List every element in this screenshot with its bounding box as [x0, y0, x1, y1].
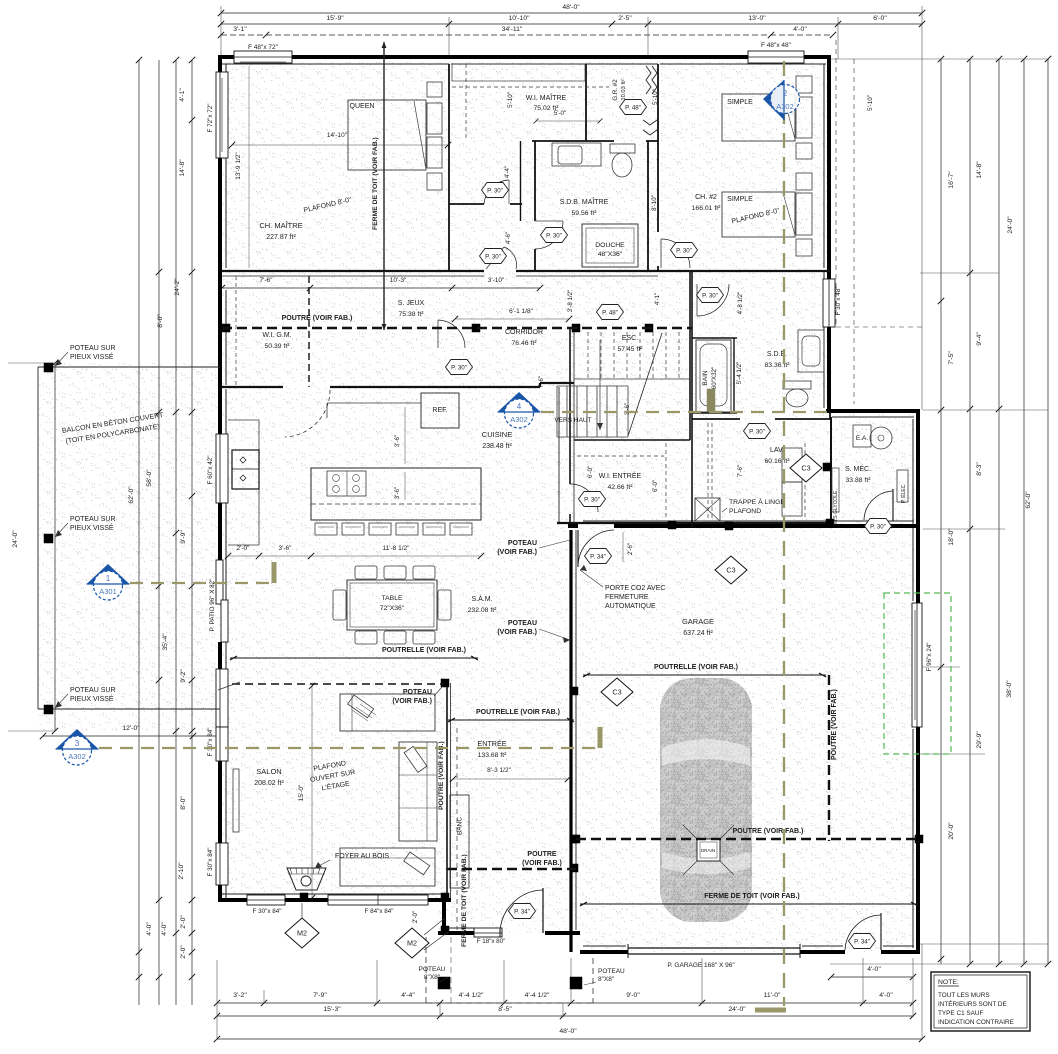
svg-text:REF.: REF.	[432, 407, 447, 414]
svg-text:(VOIR FAB.): (VOIR FAB.)	[497, 629, 537, 636]
svg-text:POTEAU: POTEAU	[508, 540, 537, 547]
svg-text:M2: M2	[297, 929, 307, 938]
svg-text:29'-9": 29'-9"	[976, 731, 983, 749]
svg-text:2'-0": 2'-0"	[237, 545, 251, 552]
svg-text:9'-4": 9'-4"	[976, 332, 983, 346]
svg-text:4'-0": 4'-0"	[146, 922, 153, 936]
svg-text:14'-10": 14'-10"	[327, 132, 348, 139]
svg-text:2: 2	[783, 89, 788, 98]
svg-text:8'-10": 8'-10"	[651, 195, 658, 211]
svg-text:P. PATIO 96" X 82": P. PATIO 96" X 82"	[209, 579, 216, 632]
svg-text:NOTE:: NOTE:	[938, 979, 959, 986]
svg-text:14'-8": 14'-8"	[976, 161, 983, 179]
svg-text:38'-0": 38'-0"	[1006, 680, 1013, 698]
svg-text:2'-5": 2'-5"	[618, 15, 632, 22]
svg-text:2'-6": 2'-6"	[627, 543, 634, 555]
svg-text:11'-8 1/2": 11'-8 1/2"	[383, 545, 411, 552]
svg-text:3'-2": 3'-2"	[233, 992, 247, 999]
svg-text:7'-6": 7'-6"	[538, 376, 545, 388]
svg-text:C3: C3	[612, 688, 621, 697]
svg-text:M2: M2	[407, 939, 417, 948]
svg-text:4'-0": 4'-0"	[161, 922, 168, 936]
svg-text:76.46 ft²: 76.46 ft²	[512, 340, 538, 347]
svg-text:DRAIN: DRAIN	[701, 848, 715, 853]
svg-text:10'-10": 10'-10"	[508, 15, 530, 22]
svg-text:S.D.B. MAÎTRE: S.D.B. MAÎTRE	[560, 197, 609, 206]
svg-text:FERME DE TOIT (VOIR FAB.): FERME DE TOIT (VOIR FAB.)	[461, 854, 468, 947]
svg-text:P. 34": P. 34"	[514, 908, 530, 915]
svg-text:10'-3": 10'-3"	[390, 277, 407, 284]
svg-text:3'-10": 3'-10"	[488, 277, 505, 284]
svg-text:FERME DE TOIT (VOIR FAB.): FERME DE TOIT (VOIR FAB.)	[704, 893, 800, 900]
svg-text:24'-0": 24'-0"	[728, 1006, 746, 1013]
svg-text:8'-5": 8'-5"	[498, 1006, 512, 1013]
svg-text:POUTRELLE (VOIR FAB.): POUTRELLE (VOIR FAB.)	[382, 647, 466, 654]
svg-text:C3: C3	[726, 566, 735, 575]
svg-text:G.R. #2: G.R. #2	[612, 79, 619, 101]
svg-text:C3: C3	[801, 464, 810, 473]
svg-text:POUTRE (VOIR FAB.): POUTRE (VOIR FAB.)	[831, 689, 838, 760]
svg-text:P. 30": P. 30"	[749, 428, 765, 435]
svg-text:4'-4 1/2": 4'-4 1/2"	[525, 992, 550, 999]
svg-text:9'-0": 9'-0"	[626, 992, 640, 999]
svg-text:POUTRE (VOIR FAB.): POUTRE (VOIR FAB.)	[438, 741, 445, 810]
svg-text:15'-3": 15'-3"	[323, 1006, 341, 1013]
svg-text:4'-1": 4'-1"	[179, 88, 186, 102]
svg-text:24'-0": 24'-0"	[12, 530, 19, 548]
svg-text:POTEAU SUR: POTEAU SUR	[70, 687, 116, 694]
svg-text:7'-5": 7'-5"	[948, 351, 955, 365]
svg-text:4'-4 1/2": 4'-4 1/2"	[459, 992, 484, 999]
svg-text:CH. MAÎTRE: CH. MAÎTRE	[259, 221, 302, 230]
svg-text:SIMPLE: SIMPLE	[727, 99, 753, 106]
svg-text:A301: A301	[99, 587, 117, 596]
svg-text:F 96"x 24": F 96"x 24"	[926, 643, 933, 672]
svg-text:F 30"x 84": F 30"x 84"	[207, 848, 214, 877]
svg-text:POUTRE: POUTRE	[527, 851, 557, 858]
svg-text:50.39 ft²: 50.39 ft²	[265, 343, 291, 350]
svg-text:BANC: BANC	[457, 817, 464, 835]
svg-text:(VOIR FAB.): (VOIR FAB.)	[497, 549, 537, 556]
svg-text:FOYER AU BOIS: FOYER AU BOIS	[335, 853, 389, 860]
svg-text:4'-6": 4'-6"	[505, 232, 512, 244]
svg-text:A302: A302	[68, 752, 86, 761]
svg-text:POUTRELLE (VOIR FAB.): POUTRELLE (VOIR FAB.)	[476, 709, 560, 716]
svg-text:8"X8": 8"X8"	[598, 976, 615, 983]
svg-text:POTEAU: POTEAU	[598, 968, 625, 975]
svg-text:232.08 ft²: 232.08 ft²	[468, 607, 497, 614]
svg-text:58'-0": 58'-0"	[146, 469, 153, 487]
svg-text:PIEUX VISSÉ: PIEUX VISSÉ	[70, 352, 114, 361]
svg-text:4'-0": 4'-0"	[867, 966, 881, 973]
svg-text:20'-0": 20'-0"	[948, 822, 955, 840]
svg-text:13'-9 1/2": 13'-9 1/2"	[235, 152, 242, 180]
svg-text:2'-10": 2'-10"	[178, 862, 185, 880]
svg-text:4: 4	[517, 402, 522, 411]
svg-text:POUTRE (VOIR FAB.): POUTRE (VOIR FAB.)	[733, 828, 804, 835]
svg-text:166.01 ft²: 166.01 ft²	[692, 205, 721, 212]
svg-text:3'-6": 3'-6"	[279, 545, 293, 552]
svg-text:ENTRÉE: ENTRÉE	[477, 739, 506, 748]
svg-text:3: 3	[75, 739, 80, 748]
svg-text:P. 34": P. 34"	[854, 938, 870, 945]
svg-text:3'-8 1/2": 3'-8 1/2"	[567, 290, 574, 313]
svg-text:72"X36": 72"X36"	[380, 605, 405, 612]
svg-text:S. MÉC.: S. MÉC.	[845, 464, 871, 473]
svg-text:SALON: SALON	[256, 767, 281, 776]
svg-text:INTÉRIEURS SONT DE: INTÉRIEURS SONT DE	[938, 999, 1007, 1008]
svg-text:SIMPLE: SIMPLE	[727, 196, 753, 203]
svg-text:POTEAU: POTEAU	[508, 620, 537, 627]
svg-text:637.24 ft²: 637.24 ft²	[683, 630, 713, 637]
svg-text:W.I. G.M.: W.I. G.M.	[262, 332, 291, 339]
svg-text:F 30"x 84": F 30"x 84"	[253, 908, 282, 915]
svg-text:6'-1 1/8": 6'-1 1/8"	[509, 308, 533, 315]
svg-text:208.02 ft²: 208.02 ft²	[254, 780, 284, 787]
svg-text:34'-11": 34'-11"	[502, 26, 523, 33]
svg-text:4'-8 1/2": 4'-8 1/2"	[737, 292, 744, 315]
svg-text:24'-0": 24'-0"	[1007, 216, 1014, 234]
svg-text:8'-3 1/2": 8'-3 1/2"	[487, 767, 511, 774]
svg-text:POTEAU SUR: POTEAU SUR	[70, 516, 116, 523]
svg-text:9'-2": 9'-2"	[180, 669, 187, 683]
svg-text:A302: A302	[776, 102, 794, 111]
svg-text:8'-0": 8'-0"	[157, 314, 164, 328]
svg-text:(VOIR FAB.): (VOIR FAB.)	[392, 698, 432, 705]
svg-text:TABLE: TABLE	[381, 595, 402, 602]
svg-text:5'-10": 5'-10"	[867, 95, 874, 111]
svg-text:5'-4 1/2": 5'-4 1/2"	[736, 362, 743, 385]
svg-text:83.36 ft²: 83.36 ft²	[765, 362, 791, 369]
svg-text:P. 30": P. 30"	[870, 523, 886, 530]
svg-text:P. ÉLEC: P. ÉLEC	[900, 484, 907, 503]
svg-text:(VOIR FAB.): (VOIR FAB.)	[522, 860, 562, 867]
svg-text:13'-0": 13'-0"	[748, 15, 766, 22]
svg-text:238.48 ft²: 238.48 ft²	[482, 443, 512, 450]
svg-text:42.66 ft²: 42.66 ft²	[608, 484, 634, 491]
svg-text:3'-6": 3'-6"	[394, 435, 401, 447]
svg-text:F 72"x 72": F 72"x 72"	[207, 104, 214, 133]
svg-text:P. GARAGE 168" X 96": P. GARAGE 168" X 96"	[667, 962, 735, 969]
svg-text:7'-6": 7'-6"	[737, 465, 744, 477]
svg-text:6'-0": 6'-0"	[873, 15, 887, 22]
svg-text:P. 48": P. 48"	[625, 104, 641, 111]
svg-text:SYS GLYCOLE: SYS GLYCOLE	[833, 490, 839, 525]
svg-text:FERMETURE: FERMETURE	[605, 594, 649, 601]
svg-text:DOUCHE: DOUCHE	[595, 242, 625, 249]
svg-text:33.88 ft²: 33.88 ft²	[846, 477, 872, 484]
svg-text:3'-6": 3'-6"	[394, 487, 401, 499]
svg-text:P. 30": P. 30"	[485, 253, 501, 260]
svg-text:16'-7": 16'-7"	[948, 171, 955, 189]
svg-text:TOUT LES MURS: TOUT LES MURS	[938, 992, 990, 999]
svg-text:CH. #2: CH. #2	[695, 194, 717, 201]
svg-text:P. 30": P. 30"	[451, 364, 467, 371]
svg-text:75.38 ft²: 75.38 ft²	[399, 311, 425, 318]
svg-text:W.I. ENTRÉE: W.I. ENTRÉE	[599, 471, 642, 480]
svg-text:F 30"x 84": F 30"x 84"	[207, 728, 214, 757]
svg-text:F 60"x 42": F 60"x 42"	[207, 456, 214, 485]
svg-text:2'-0": 2'-0"	[180, 915, 187, 929]
svg-text:F 48"x 72": F 48"x 72"	[248, 44, 279, 51]
svg-text:P. 48": P. 48"	[602, 309, 618, 316]
svg-text:S.À.M.: S.À.M.	[471, 594, 492, 603]
svg-text:8'-3": 8'-3"	[976, 462, 983, 476]
svg-text:PIEUX VISSÉ: PIEUX VISSÉ	[70, 694, 114, 703]
svg-text:5'-0": 5'-0"	[554, 110, 566, 117]
svg-text:48"X36": 48"X36"	[598, 251, 623, 258]
svg-text:10.03 ft²: 10.03 ft²	[621, 79, 627, 100]
svg-text:1: 1	[106, 574, 111, 583]
svg-text:8'-0": 8'-0"	[180, 796, 187, 810]
svg-text:F 84"x 84": F 84"x 84"	[365, 908, 394, 915]
svg-text:7'-6": 7'-6"	[260, 277, 274, 284]
svg-text:S. JEUX: S. JEUX	[398, 300, 425, 307]
svg-text:PLAFOND: PLAFOND	[729, 508, 761, 515]
svg-text:QUEEN: QUEEN	[350, 103, 375, 110]
svg-text:P. 30": P. 30"	[546, 232, 562, 239]
svg-text:3'-1": 3'-1"	[233, 26, 247, 33]
svg-text:2'-0": 2'-0"	[412, 911, 419, 923]
svg-text:CORRIDOR: CORRIDOR	[505, 329, 543, 336]
svg-text:12'-0": 12'-0"	[122, 725, 140, 732]
svg-text:4'-1": 4'-1"	[654, 293, 661, 305]
svg-text:P. 34": P. 34"	[590, 553, 606, 560]
svg-text:PIEUX VISSÉ: PIEUX VISSÉ	[70, 523, 114, 532]
svg-text:24'-2": 24'-2"	[174, 278, 181, 296]
svg-text:P. 30": P. 30"	[676, 247, 692, 254]
svg-text:14'-8": 14'-8"	[179, 159, 186, 177]
svg-text:CUISINE: CUISINE	[482, 430, 512, 439]
svg-text:15'-0": 15'-0"	[298, 784, 305, 801]
svg-text:227.87 ft²: 227.87 ft²	[266, 234, 296, 241]
svg-text:ESC.: ESC.	[622, 335, 638, 342]
svg-text:6'-0": 6'-0"	[587, 466, 594, 478]
svg-text:INDICATION CONTRAIRE: INDICATION CONTRAIRE	[938, 1019, 1014, 1026]
svg-text:48'-0": 48'-0"	[559, 1028, 577, 1035]
svg-text:P. 30": P. 30"	[584, 496, 600, 503]
svg-text:VERS HAUT: VERS HAUT	[554, 417, 591, 424]
svg-text:133.68 ft²: 133.68 ft²	[478, 752, 507, 759]
svg-text:P. 30": P. 30"	[487, 187, 503, 194]
svg-text:11'-0": 11'-0"	[764, 992, 781, 999]
svg-text:A302: A302	[510, 415, 528, 424]
svg-text:60"X32": 60"X32"	[711, 367, 718, 389]
svg-text:4'-0": 4'-0"	[793, 26, 807, 33]
svg-text:62'-0": 62'-0"	[1025, 491, 1032, 509]
svg-text:18'-0": 18'-0"	[948, 528, 955, 546]
svg-text:AUTOMATIQUE: AUTOMATIQUE	[605, 603, 656, 610]
svg-text:48'-0": 48'-0"	[562, 4, 580, 11]
svg-text:TRAPPE À LINGE: TRAPPE À LINGE	[729, 497, 785, 506]
svg-text:POUTRELLE (VOIR FAB.): POUTRELLE (VOIR FAB.)	[654, 664, 738, 671]
svg-text:4'-0": 4'-0"	[879, 992, 893, 999]
svg-text:60.16 ft²: 60.16 ft²	[765, 458, 791, 465]
svg-text:F 48"x 48": F 48"x 48"	[761, 42, 792, 49]
svg-text:2'-0": 2'-0"	[180, 945, 187, 959]
svg-text:P. 30": P. 30"	[702, 292, 718, 299]
svg-text:POTEAU: POTEAU	[403, 689, 432, 696]
svg-text:POTEAU: POTEAU	[419, 966, 446, 973]
svg-text:8"X8": 8"X8"	[424, 974, 441, 981]
svg-text:15'-9": 15'-9"	[326, 15, 344, 22]
svg-text:62'-0": 62'-0"	[128, 486, 135, 504]
svg-text:POUTRE (VOIR FAB.): POUTRE (VOIR FAB.)	[282, 315, 353, 322]
svg-text:4'-4": 4'-4"	[504, 166, 511, 178]
svg-text:W.I. MAÎTRE: W.I. MAÎTRE	[526, 93, 567, 102]
svg-text:GARAGE: GARAGE	[682, 617, 714, 626]
svg-text:57.45 ft²: 57.45 ft²	[618, 346, 644, 353]
svg-text:3'-6": 3'-6"	[624, 403, 631, 415]
svg-text:5'-10": 5'-10"	[507, 92, 514, 108]
svg-text:F 18"x 80": F 18"x 80"	[477, 938, 505, 945]
svg-text:BAIN: BAIN	[702, 370, 709, 385]
svg-text:TYPE C1 SAUF: TYPE C1 SAUF	[938, 1010, 984, 1017]
svg-text:59.56 ft²: 59.56 ft²	[572, 210, 598, 217]
svg-text:35'-4": 35'-4"	[162, 633, 169, 651]
svg-text:5'-10": 5'-10"	[652, 89, 659, 105]
svg-text:7'-9": 7'-9"	[313, 992, 327, 999]
svg-text:FERME DE TOIT (VOIR FAB.): FERME DE TOIT (VOIR FAB.)	[372, 137, 379, 230]
svg-text:E.A.: E.A.	[856, 435, 868, 442]
svg-text:9'-9": 9'-9"	[180, 530, 187, 544]
svg-text:4'-4": 4'-4"	[401, 992, 415, 999]
svg-text:6'-0": 6'-0"	[652, 480, 659, 492]
svg-text:POTEAU SUR: POTEAU SUR	[70, 345, 116, 352]
svg-text:PORTE CO2 AVEC: PORTE CO2 AVEC	[605, 585, 665, 592]
